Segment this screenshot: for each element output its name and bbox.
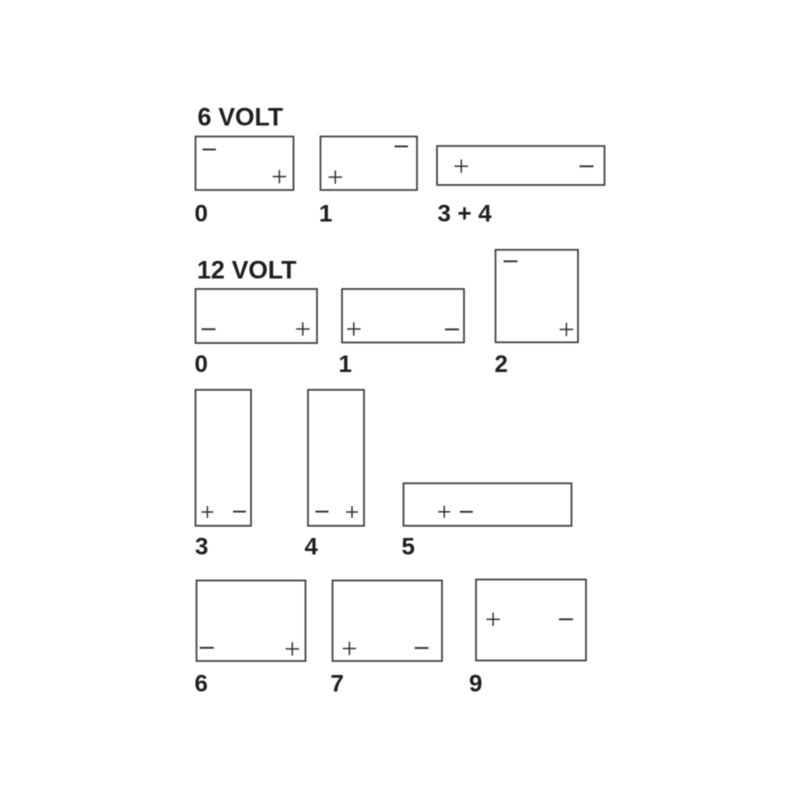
svg-text:6 VOLT: 6 VOLT	[198, 104, 284, 132]
svg-text:0: 0	[195, 351, 208, 378]
svg-text:12 VOLT: 12 VOLT	[197, 257, 297, 285]
svg-text:6: 6	[195, 671, 208, 698]
svg-text:0: 0	[195, 201, 208, 228]
svg-text:3: 3	[195, 534, 208, 561]
svg-text:7: 7	[331, 671, 344, 698]
svg-text:1: 1	[319, 201, 332, 228]
svg-text:9: 9	[469, 671, 482, 698]
svg-text:4: 4	[305, 534, 319, 561]
svg-text:5: 5	[402, 534, 415, 561]
svg-text:3 + 4: 3 + 4	[438, 201, 493, 228]
svg-text:2: 2	[495, 351, 508, 378]
svg-text:1: 1	[339, 351, 352, 378]
